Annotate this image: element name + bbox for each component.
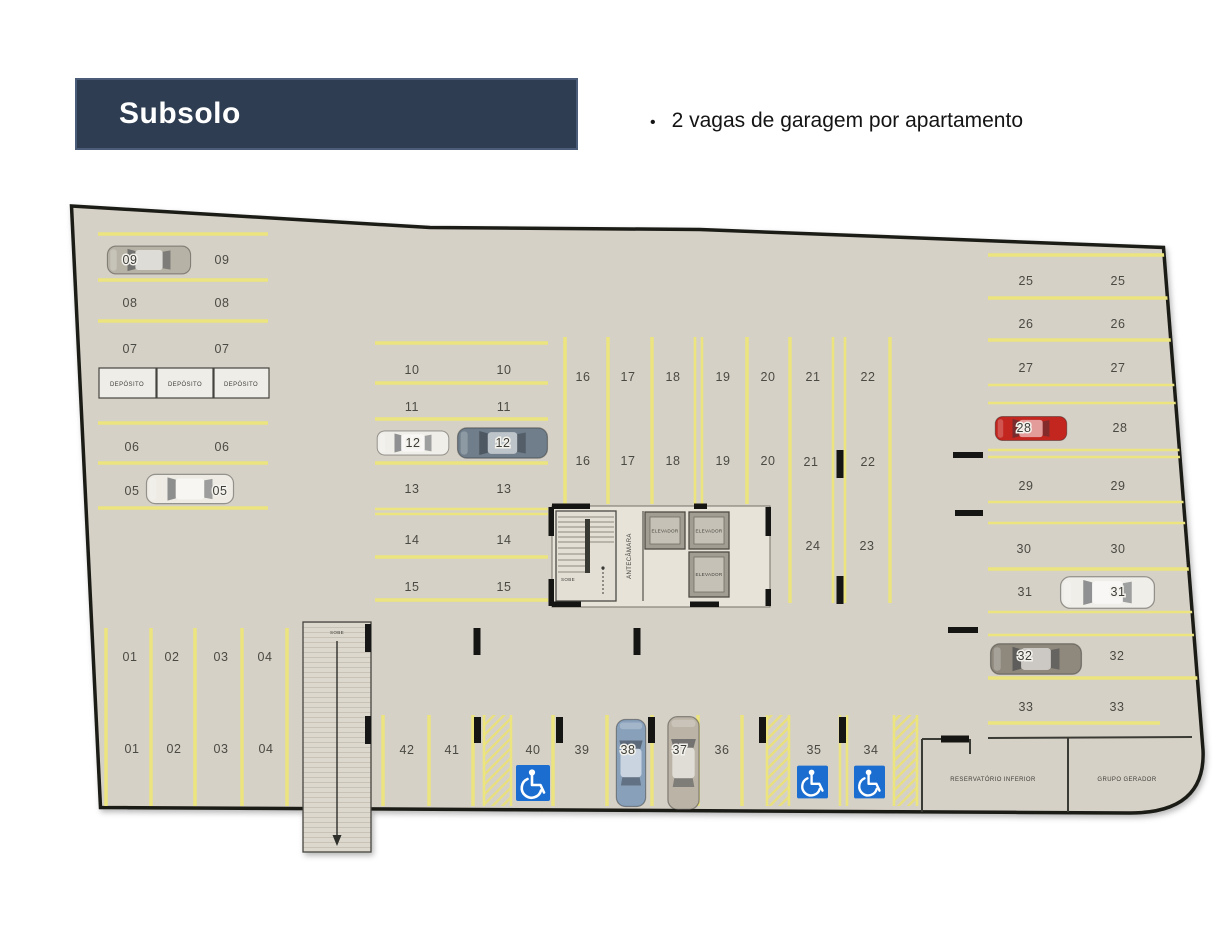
spot-label-14: 14	[496, 533, 511, 547]
spot-label-11: 11	[497, 400, 511, 414]
spot-label-02: 02	[164, 650, 179, 664]
column	[634, 628, 641, 655]
column	[759, 717, 766, 743]
spot-label-33: 33	[1109, 700, 1124, 714]
spot-label-39: 39	[574, 743, 589, 757]
spot-label-02: 02	[166, 742, 181, 756]
spot-label-27: 27	[1110, 361, 1125, 375]
spot-label-28: 28	[1112, 421, 1127, 435]
spot-label-17: 17	[620, 454, 635, 468]
spot-label-08: 08	[214, 296, 229, 310]
column	[839, 717, 846, 743]
deposito-label: DEPÓSITO	[224, 381, 258, 388]
spot-label-33: 33	[1018, 700, 1033, 714]
spot-label-15: 15	[496, 580, 511, 594]
car-spot-38	[616, 720, 645, 807]
spot-label-07: 07	[214, 342, 229, 356]
car-spot-37	[668, 717, 699, 810]
room-wall	[988, 737, 1192, 738]
spot-label-10: 10	[404, 363, 419, 377]
spot-label-34: 34	[863, 743, 878, 757]
spot-label-36: 36	[714, 743, 729, 757]
spot-label-11: 11	[405, 400, 419, 414]
spot-label-06: 06	[124, 440, 139, 454]
ramp-wall	[365, 716, 371, 744]
spot-label-17: 17	[620, 370, 635, 384]
column	[837, 450, 844, 478]
spot-label-29: 29	[1018, 479, 1033, 493]
spot-label-15: 15	[404, 580, 419, 594]
ramp-wall	[365, 624, 371, 652]
column	[955, 510, 983, 516]
spot-label-35: 35	[806, 743, 821, 757]
spot-label-21: 21	[805, 370, 820, 384]
spot-label-22: 22	[860, 455, 875, 469]
spot-label-31: 31	[1110, 585, 1125, 599]
spot-label-01: 01	[122, 650, 137, 664]
handicap-icon	[797, 766, 828, 799]
spot-label-30: 30	[1016, 542, 1031, 556]
spot-label-08: 08	[122, 296, 137, 310]
spot-label-21: 21	[803, 455, 818, 469]
spot-label-09: 09	[214, 253, 229, 267]
spot-label-25: 25	[1110, 274, 1125, 288]
spot-label-01: 01	[124, 742, 139, 756]
car-spot-31	[1061, 577, 1155, 609]
spot-label-27: 27	[1018, 361, 1033, 375]
spot-label-10: 10	[496, 363, 511, 377]
spot-label-20: 20	[760, 454, 775, 468]
spot-label-41: 41	[444, 743, 459, 757]
handicap-icon	[516, 765, 550, 801]
deposito-label: DEPÓSITO	[110, 381, 144, 388]
spot-label-13: 13	[404, 482, 419, 496]
antechamber-label: ANTECÂMARA	[626, 533, 633, 579]
spot-label-18: 18	[665, 370, 680, 384]
spot-label-19: 19	[715, 370, 730, 384]
elevator-label: ELEVADOR	[695, 572, 722, 577]
spot-label-16: 16	[575, 454, 590, 468]
spot-label-14: 14	[404, 533, 419, 547]
spot-label-03: 03	[213, 742, 228, 756]
stair-rail	[585, 519, 590, 573]
column	[941, 736, 969, 743]
spot-label-24: 24	[805, 539, 820, 553]
spot-label-13: 13	[496, 482, 511, 496]
column	[837, 576, 844, 604]
spot-label-40: 40	[525, 743, 540, 757]
hatched-area	[894, 715, 917, 806]
stair-sobe-label: SOBE	[561, 577, 575, 582]
spot-label-22: 22	[860, 370, 875, 384]
hatched-area	[484, 715, 511, 806]
spot-label-09: 09	[122, 253, 137, 267]
car-spot-32	[991, 644, 1082, 675]
car-spot-09	[107, 246, 190, 274]
spot-label-05: 05	[124, 484, 139, 498]
reservatorio-label: RESERVATÓRIO INFERIOR	[950, 776, 1036, 783]
spot-label-06: 06	[214, 440, 229, 454]
handicap-icon	[854, 766, 885, 799]
ramp: SOBE	[303, 622, 371, 852]
spot-label-12: 12	[405, 436, 420, 450]
spot-label-37: 37	[672, 743, 687, 757]
deposito-rooms: DEPÓSITO DEPÓSITO DEPÓSITO	[99, 368, 269, 398]
column	[953, 452, 983, 458]
grupo-gerador-label: GRUPO GERADOR	[1097, 777, 1156, 783]
spot-label-32: 32	[1017, 649, 1032, 663]
spot-label-07: 07	[122, 342, 137, 356]
spot-label-16: 16	[575, 370, 590, 384]
slide: Subsolo • 2 vagas de garagem por apartam…	[0, 0, 1225, 933]
floor-plan: SOBE DEPÓSITO DEPÓSITO	[0, 0, 1225, 933]
elevator-label: ELEVADOR	[695, 529, 722, 534]
column	[556, 717, 563, 743]
spot-label-04: 04	[257, 650, 272, 664]
spot-label-32: 32	[1109, 649, 1124, 663]
spot-label-03: 03	[213, 650, 228, 664]
elevator-label: ELEVADOR	[651, 529, 678, 534]
column	[648, 717, 655, 743]
spot-label-20: 20	[760, 370, 775, 384]
spot-label-30: 30	[1110, 542, 1125, 556]
spot-label-23: 23	[859, 539, 874, 553]
column	[474, 628, 481, 655]
hatched-area	[767, 715, 789, 806]
core: SOBE ANTECÂMARA ELEVADOR ELEVADOR ELEVAD…	[549, 504, 772, 608]
spot-label-31: 31	[1017, 585, 1032, 599]
spot-label-19: 19	[715, 454, 730, 468]
deposito-label: DEPÓSITO	[168, 381, 202, 388]
spot-label-26: 26	[1018, 317, 1033, 331]
spot-label-05: 05	[212, 484, 227, 498]
spot-label-04: 04	[258, 742, 273, 756]
spot-label-18: 18	[665, 454, 680, 468]
column	[948, 627, 978, 633]
spot-label-42: 42	[399, 743, 414, 757]
spot-label-26: 26	[1110, 317, 1125, 331]
ramp-sobe-label: SOBE	[330, 630, 344, 635]
spot-label-28: 28	[1016, 421, 1031, 435]
column	[474, 717, 481, 743]
spot-label-38: 38	[620, 743, 635, 757]
spot-label-25: 25	[1018, 274, 1033, 288]
spot-label-29: 29	[1110, 479, 1125, 493]
spot-label-12: 12	[495, 436, 510, 450]
